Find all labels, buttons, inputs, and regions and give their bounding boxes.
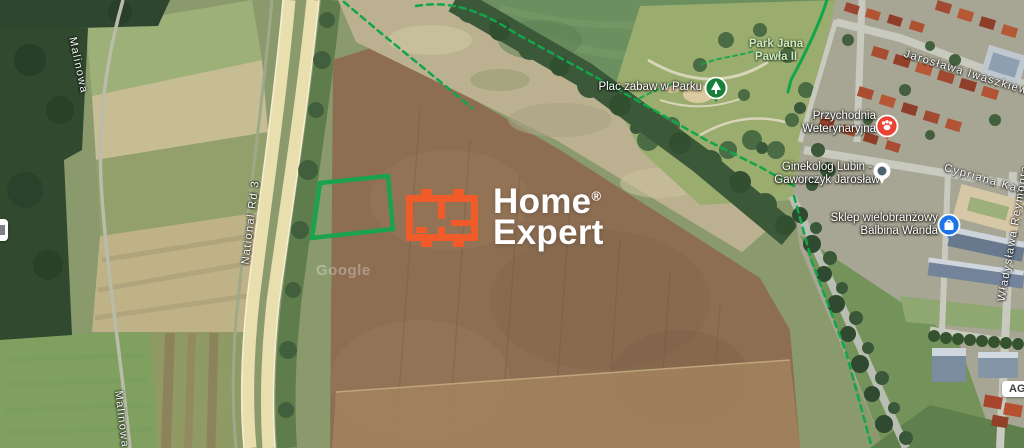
gynecologist-marker[interactable] bbox=[872, 162, 892, 186]
poi-label-park[interactable]: Park Jana Pawła II bbox=[736, 38, 816, 64]
satellite-map[interactable]: Malinowa Malinowa National Rd 3 Jarosław… bbox=[0, 0, 1024, 448]
floor-plan-icon bbox=[404, 186, 480, 250]
vet-marker[interactable] bbox=[874, 114, 900, 142]
poi-label-partial[interactable]: AGE bbox=[1002, 381, 1024, 397]
clipped-map-label bbox=[0, 219, 8, 241]
registered-mark: ® bbox=[591, 188, 601, 203]
poi-label-vet[interactable]: Przychodnia Weterynaryjna bbox=[770, 110, 876, 136]
logo-wordmark: Home® Expert bbox=[493, 186, 604, 248]
poi-label-gynecologist[interactable]: Ginekolog Lubin - Gaworczyk Jarosław bbox=[768, 161, 886, 187]
imagery-watermark: Google bbox=[316, 262, 371, 279]
poi-label-shop[interactable]: Sklep wielobranżowy Balbina Wanda bbox=[830, 212, 938, 238]
playground-marker[interactable] bbox=[703, 76, 729, 104]
shop-marker[interactable] bbox=[936, 213, 962, 241]
dot-icon bbox=[878, 167, 887, 176]
poi-label-playground[interactable]: Plac zabaw w Parku bbox=[592, 81, 702, 94]
home-expert-logo: Home® Expert bbox=[404, 186, 604, 250]
